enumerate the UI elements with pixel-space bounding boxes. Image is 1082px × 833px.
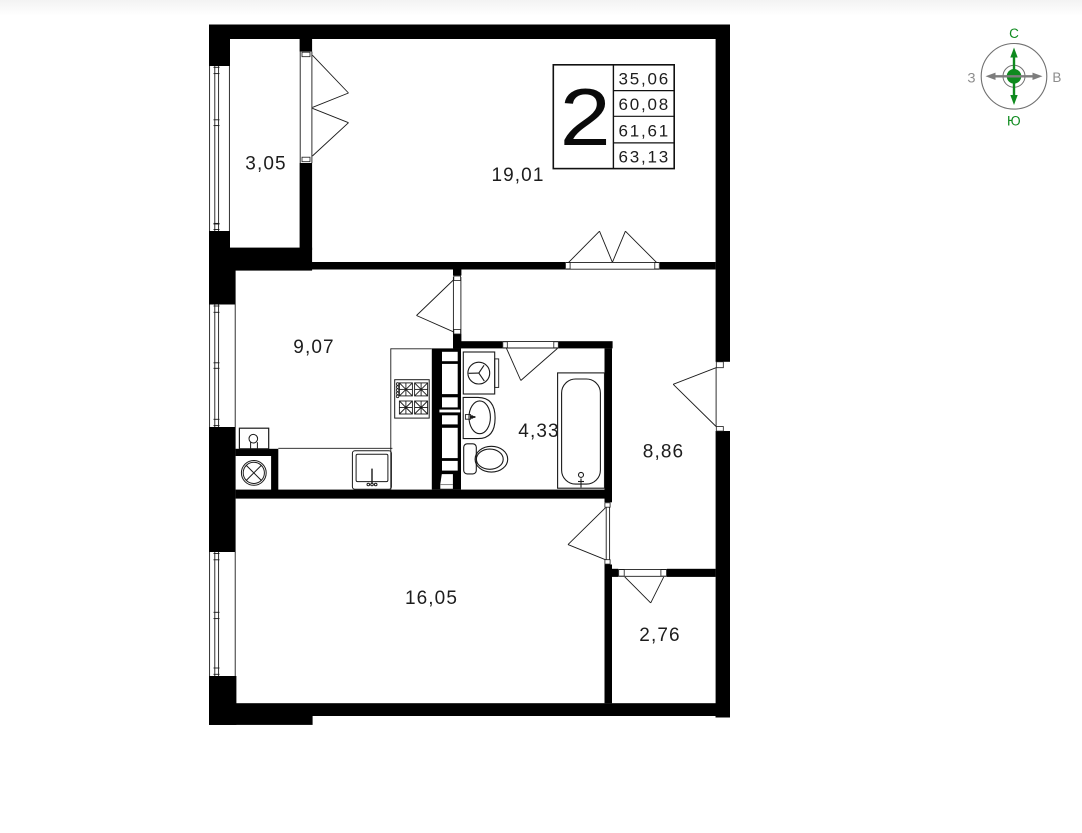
svg-text:2: 2: [560, 73, 611, 163]
svg-text:З: З: [967, 70, 975, 85]
svg-text:63,13: 63,13: [619, 148, 671, 167]
svg-text:16,05: 16,05: [405, 588, 458, 609]
svg-text:С: С: [1009, 26, 1019, 41]
svg-text:3,05: 3,05: [245, 154, 286, 175]
svg-text:60,08: 60,08: [619, 95, 671, 114]
svg-text:8,86: 8,86: [643, 442, 684, 463]
svg-text:В: В: [1052, 70, 1061, 85]
svg-text:61,61: 61,61: [619, 121, 671, 140]
svg-text:4,33: 4,33: [518, 421, 559, 442]
svg-text:9,07: 9,07: [293, 337, 334, 358]
svg-text:Ю: Ю: [1007, 113, 1021, 128]
svg-text:19,01: 19,01: [491, 165, 544, 186]
svg-text:35,06: 35,06: [619, 69, 671, 88]
svg-text:2,76: 2,76: [639, 625, 680, 646]
